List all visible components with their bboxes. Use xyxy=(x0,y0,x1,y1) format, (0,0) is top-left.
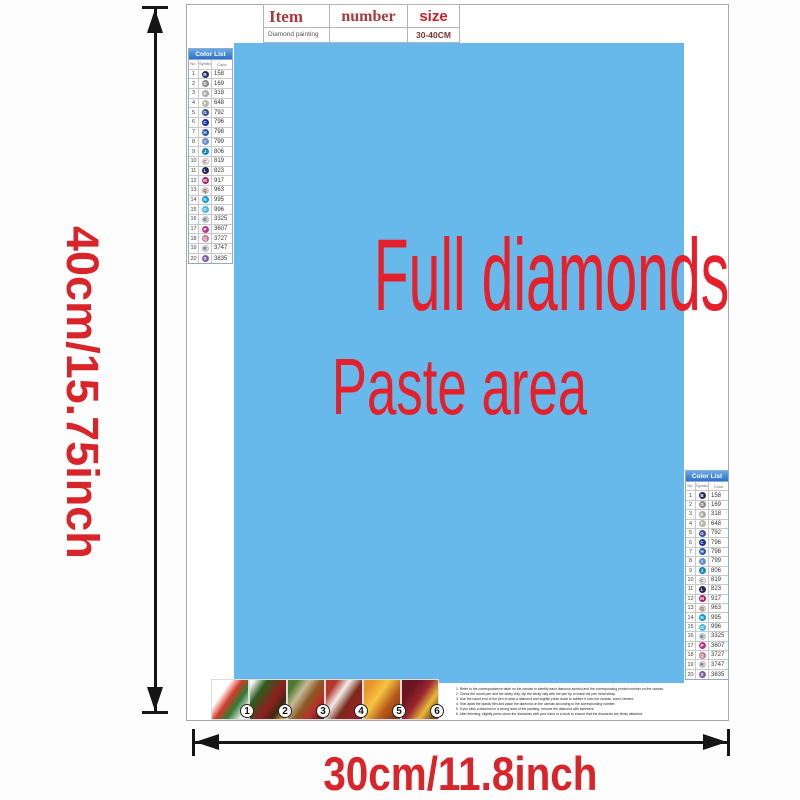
color-row-number: 10 xyxy=(686,576,696,584)
color-row-number: 6 xyxy=(189,118,199,127)
color-row-number: 9 xyxy=(686,567,696,575)
color-list-row: 20S3835 xyxy=(686,670,728,679)
color-row-number: 15 xyxy=(686,623,696,631)
dmc-color-code: 318 xyxy=(709,511,728,517)
color-row-number: 6 xyxy=(686,538,696,546)
instruction-step-photo: 3 xyxy=(287,679,325,720)
dmc-color-code: 792 xyxy=(709,530,728,536)
dmc-color-code: 799 xyxy=(212,139,232,145)
dmc-color-code: 3607 xyxy=(709,643,728,649)
dmc-color-code: 823 xyxy=(709,586,728,592)
color-row-number: 14 xyxy=(686,613,696,621)
diamond-symbol-icon: B xyxy=(199,70,212,79)
color-row-number: 17 xyxy=(686,642,696,650)
number-value xyxy=(330,28,408,42)
color-row-number: 2 xyxy=(189,79,199,88)
color-list-row: 17P3607 xyxy=(686,642,728,651)
diamond-symbol-icon: P xyxy=(696,642,709,650)
diamond-symbol-icon: C xyxy=(696,538,709,546)
dmc-color-code: 796 xyxy=(709,540,728,546)
dmc-color-code: 3727 xyxy=(709,652,728,658)
item-header: Item xyxy=(264,5,330,28)
paste-area-subtitle: Paste area xyxy=(234,341,684,433)
dmc-color-code: 3747 xyxy=(709,662,728,668)
diamond-symbol-icon: I xyxy=(696,557,709,565)
color-list-title: Color List xyxy=(189,49,232,60)
color-list-row: 3E318 xyxy=(189,89,232,99)
diamond-symbol-icon: J xyxy=(696,567,709,575)
color-list-row: 13Q963 xyxy=(189,186,232,196)
diamond-symbol-icon: H xyxy=(696,548,709,556)
color-list-row: 15O996 xyxy=(686,623,728,632)
diamond-symbol-icon: C xyxy=(696,576,709,584)
dmc-color-code: 158 xyxy=(212,71,232,77)
color-list-left: Color ListNo.SymbolColor1B1582D1693E3184… xyxy=(188,48,233,264)
item-table-header-row: Item number size xyxy=(264,5,459,28)
color-list-row: 14N995 xyxy=(189,196,232,206)
color-row-number: 12 xyxy=(189,176,199,185)
diamond-symbol-icon: M xyxy=(199,176,212,185)
color-row-number: 8 xyxy=(189,138,199,147)
diamond-symbol-icon: O xyxy=(199,205,212,214)
color-list-row: 10C819 xyxy=(686,576,728,585)
color-row-number: 19 xyxy=(686,660,696,668)
diamond-symbol-icon: O xyxy=(696,623,709,631)
diamond-symbol-icon: D xyxy=(199,79,212,88)
color-list-title: Color List xyxy=(686,471,728,482)
color-list-row: 5G792 xyxy=(686,529,728,538)
diamond-symbol-icon: L xyxy=(696,585,709,593)
color-list-header-row: No.SymbolColor xyxy=(189,60,232,70)
diamond-symbol-icon: J xyxy=(199,147,212,156)
paste-area-subtitle-text: Paste area xyxy=(331,341,586,433)
color-row-number: 8 xyxy=(686,557,696,565)
dmc-color-code: 798 xyxy=(709,549,728,555)
color-row-number: 9 xyxy=(189,147,199,156)
color-list-row: 1B158 xyxy=(189,70,232,80)
diamond-symbol-icon: N xyxy=(696,613,709,621)
dmc-color-code: 995 xyxy=(709,615,728,621)
item-table-value-row: Diamond painting 30-40CM xyxy=(264,28,459,42)
color-list-row: 9J806 xyxy=(686,567,728,576)
color-row-number: 19 xyxy=(189,244,199,253)
color-list-row: 17P3607 xyxy=(189,225,232,235)
dmc-color-code: 917 xyxy=(212,178,232,184)
color-row-number: 3 xyxy=(189,89,199,98)
dmc-color-code: 798 xyxy=(212,129,232,135)
dmc-color-code: 917 xyxy=(709,596,728,602)
diamond-symbol-icon: C xyxy=(199,118,212,127)
color-row-number: 7 xyxy=(686,548,696,556)
dmc-color-code: 648 xyxy=(709,521,728,527)
diamond-symbol-icon: R xyxy=(199,244,212,253)
color-row-number: 4 xyxy=(189,99,199,108)
diamond-symbol-icon: G xyxy=(696,529,709,537)
size-value: 30-40CM xyxy=(408,28,459,42)
color-list-row: 8I799 xyxy=(686,557,728,566)
diamond-symbol-icon: E xyxy=(199,89,212,98)
color-list-row: 14N995 xyxy=(686,613,728,622)
diamond-symbol-icon: C xyxy=(199,157,212,166)
color-row-number: 14 xyxy=(189,196,199,205)
color-list-row: 16K3325 xyxy=(686,632,728,641)
color-list-row: 18Q3727 xyxy=(686,651,728,660)
dmc-color-code: 3835 xyxy=(709,672,728,678)
color-row-number: 17 xyxy=(189,225,199,234)
color-row-number: 16 xyxy=(686,632,696,640)
dmc-color-code: 796 xyxy=(212,119,232,125)
diamond-symbol-icon: Q xyxy=(199,234,212,243)
paste-area-title: Full diamonds xyxy=(234,217,684,334)
color-row-number: 3 xyxy=(686,510,696,518)
color-row-number: 15 xyxy=(189,205,199,214)
height-dimension-label: 40cm/15.75inch xyxy=(56,226,108,559)
dmc-color-code: 996 xyxy=(212,207,232,213)
item-value: Diamond painting xyxy=(264,28,330,42)
color-row-number: 12 xyxy=(686,595,696,603)
step-number-badge: 6 xyxy=(430,704,444,718)
diamond-symbol-icon: E xyxy=(696,510,709,518)
color-list-row: 19R3747 xyxy=(686,660,728,669)
color-row-number: 5 xyxy=(686,529,696,537)
dmc-color-code: 799 xyxy=(709,558,728,564)
instruction-line: 6. After finishing, slightly press down … xyxy=(456,712,704,717)
diamond-symbol-icon: L xyxy=(199,167,212,176)
color-list-row: 1B158 xyxy=(686,491,728,500)
color-row-number: 13 xyxy=(686,604,696,612)
height-arrow-bottom-cap xyxy=(142,711,168,714)
color-row-number: 4 xyxy=(686,520,696,528)
width-arrow-shaft xyxy=(195,741,728,744)
diamond-painting-size-diagram: 40cm/15.75inch Item number size Diamond … xyxy=(0,0,800,800)
item-info-table: Item number size Diamond painting 30-40C… xyxy=(263,4,460,43)
dmc-color-code: 963 xyxy=(212,187,232,193)
color-row-number: 18 xyxy=(686,651,696,659)
diamond-symbol-icon: F xyxy=(696,520,709,528)
diamond-symbol-icon: N xyxy=(199,196,212,205)
instruction-text: 1. Refer to the correspondence table on … xyxy=(456,687,704,717)
dmc-color-code: 3325 xyxy=(709,633,728,639)
color-row-number: 7 xyxy=(189,128,199,137)
diamond-symbol-icon: Q xyxy=(696,604,709,612)
color-row-number: 10 xyxy=(189,157,199,166)
diamond-symbol-icon: Q xyxy=(199,186,212,195)
step-number-badge: 1 xyxy=(240,704,254,718)
diamond-symbol-icon: I xyxy=(199,138,212,147)
step-number-badge: 5 xyxy=(392,704,406,718)
instruction-step-photo: 4 xyxy=(325,679,363,720)
color-list-row: 12M917 xyxy=(686,595,728,604)
diamond-symbol-icon: R xyxy=(696,660,709,668)
instruction-step-photo: 5 xyxy=(363,679,401,720)
down-arrow-icon xyxy=(147,687,163,711)
color-list-row: 9J806 xyxy=(189,147,232,157)
dmc-color-code: 3835 xyxy=(212,256,232,262)
color-row-number: 11 xyxy=(686,585,696,593)
color-row-number: 20 xyxy=(686,670,696,679)
dmc-color-code: 158 xyxy=(709,493,728,499)
color-list-row: 3E318 xyxy=(686,510,728,519)
color-row-number: 5 xyxy=(189,108,199,117)
dmc-color-code: 318 xyxy=(212,90,232,96)
color-list-row: 5G792 xyxy=(189,108,232,118)
color-list-row: 6C796 xyxy=(686,538,728,547)
color-list-header-row: No.SymbolColor xyxy=(686,482,728,491)
color-list-row: 13Q963 xyxy=(686,604,728,613)
diamond-symbol-icon: S xyxy=(696,670,709,679)
dmc-color-code: 823 xyxy=(212,168,232,174)
color-row-number: 1 xyxy=(686,491,696,499)
dmc-color-code: 792 xyxy=(212,110,232,116)
color-list-row: 6C796 xyxy=(189,118,232,128)
dmc-color-code: 169 xyxy=(212,81,232,87)
step-number-badge: 4 xyxy=(354,704,368,718)
dmc-color-code: 819 xyxy=(212,158,232,164)
width-dimension-text: 30cm/11.8inch xyxy=(323,746,597,800)
size-header: size xyxy=(408,5,459,28)
dmc-color-code: 3747 xyxy=(212,245,232,251)
color-row-number: 1 xyxy=(189,70,199,79)
color-row-number: 13 xyxy=(189,186,199,195)
color-list-row: 10C819 xyxy=(189,157,232,167)
color-list-row: 8I799 xyxy=(189,138,232,148)
diamond-symbol-icon: F xyxy=(199,99,212,108)
color-row-number: 18 xyxy=(189,234,199,243)
color-list-row: 12M917 xyxy=(189,176,232,186)
color-list-row: 20S3835 xyxy=(189,254,232,264)
dmc-color-code: 806 xyxy=(212,149,232,155)
color-list-row: 2D169 xyxy=(189,79,232,89)
diamond-symbol-icon: G xyxy=(199,108,212,117)
canvas-poster: Item number size Diamond painting 30-40C… xyxy=(186,4,729,721)
color-list-right: Color ListNo.SymbolColor1B1582D1693E3184… xyxy=(685,470,729,680)
diamond-symbol-icon: Q xyxy=(696,651,709,659)
dmc-color-code: 648 xyxy=(212,100,232,106)
step-number-badge: 2 xyxy=(278,704,292,718)
color-list-row: 11L823 xyxy=(189,167,232,177)
dmc-color-code: 995 xyxy=(212,197,232,203)
color-list-row: 4F648 xyxy=(189,99,232,109)
instruction-thumbnails: 123456 xyxy=(211,679,439,720)
width-dimension-label: 30cm/11.8inch xyxy=(190,746,730,800)
height-arrow-shaft xyxy=(154,9,157,712)
color-list-row: 18Q3727 xyxy=(189,234,232,244)
paste-area: Full diamonds Paste area xyxy=(234,43,684,683)
dmc-color-code: 3727 xyxy=(212,236,232,242)
dmc-color-code: 3325 xyxy=(212,216,232,222)
color-row-number: 11 xyxy=(189,167,199,176)
paste-area-title-text: Full diamonds xyxy=(374,217,730,334)
color-row-number: 2 xyxy=(686,501,696,509)
dmc-color-code: 806 xyxy=(709,568,728,574)
color-list-row: 16K3325 xyxy=(189,215,232,225)
color-row-number: 16 xyxy=(189,215,199,224)
color-list-row: 2D169 xyxy=(686,501,728,510)
diamond-symbol-icon: K xyxy=(199,215,212,224)
diamond-symbol-icon: D xyxy=(696,501,709,509)
instruction-step-photo: 1 xyxy=(211,679,249,720)
color-list-row: 7H798 xyxy=(686,548,728,557)
dmc-color-code: 819 xyxy=(709,577,728,583)
diamond-symbol-icon: B xyxy=(696,491,709,499)
diamond-symbol-icon: M xyxy=(696,595,709,603)
color-list-row: 4F648 xyxy=(686,520,728,529)
dmc-color-code: 3607 xyxy=(212,226,232,232)
dmc-color-code: 169 xyxy=(709,502,728,508)
dmc-color-code: 996 xyxy=(709,624,728,630)
diamond-symbol-icon: K xyxy=(696,632,709,640)
instruction-step-photo: 6 xyxy=(401,679,439,720)
color-row-number: 20 xyxy=(189,254,199,264)
color-list-row: 15O996 xyxy=(189,205,232,215)
color-list-row: 7H798 xyxy=(189,128,232,138)
instruction-step-photo: 2 xyxy=(249,679,287,720)
number-header: number xyxy=(330,5,408,28)
dmc-color-code: 963 xyxy=(709,605,728,611)
diamond-symbol-icon: S xyxy=(199,254,212,264)
diamond-symbol-icon: H xyxy=(199,128,212,137)
up-arrow-icon xyxy=(147,9,163,33)
diamond-symbol-icon: P xyxy=(199,225,212,234)
color-list-row: 11L823 xyxy=(686,585,728,594)
step-number-badge: 3 xyxy=(316,704,330,718)
color-list-row: 19R3747 xyxy=(189,244,232,254)
